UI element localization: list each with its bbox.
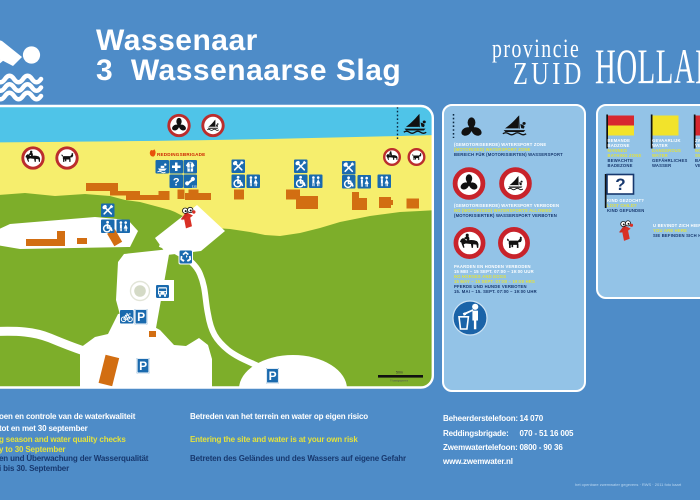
svg-text:50m: 50m bbox=[396, 371, 403, 375]
svg-text:REDDINGSBRIGADE: REDDINGSBRIGADE bbox=[157, 152, 205, 157]
svg-text:© kaartgegevens: © kaartgegevens bbox=[390, 380, 409, 383]
svg-text:?: ? bbox=[615, 175, 625, 194]
